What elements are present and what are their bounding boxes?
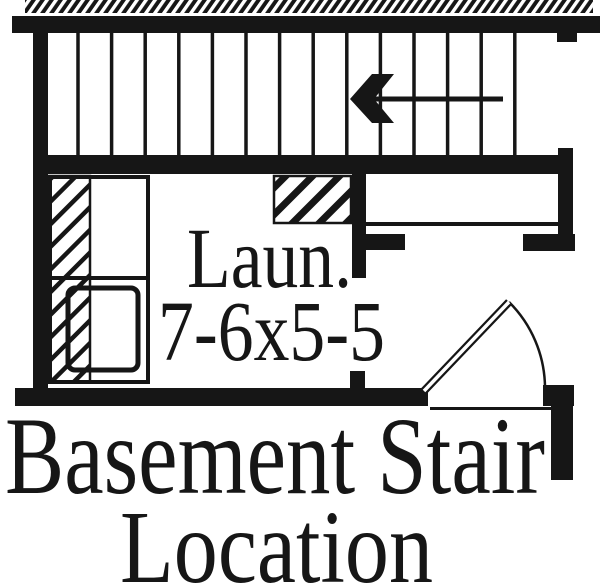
arrow-shaft	[373, 97, 503, 102]
top-wall-hatch-strip	[25, 0, 593, 13]
caption-title-line2: Location	[120, 490, 433, 585]
door-swing	[424, 302, 558, 410]
stair-treads	[78, 33, 515, 157]
stair-bottom-wall	[40, 155, 560, 174]
door-arc	[509, 302, 545, 387]
upper-wall-band	[12, 16, 600, 33]
basement-stair-floor-plan: Laun. 7-6x5-5 Basement Stair Location	[0, 0, 600, 585]
floor-plan-page: Laun. 7-6x5-5 Basement Stair Location	[0, 0, 600, 585]
laundry-dimensions-label: 7-6x5-5	[158, 283, 385, 379]
left-wall-stub	[360, 234, 405, 250]
right-wall-stub	[523, 234, 575, 251]
hall-wall-line	[366, 222, 558, 226]
door-leaf-core	[424, 302, 509, 391]
right-wall-lower	[551, 400, 573, 480]
left-wall	[33, 16, 48, 406]
upper-wall-tab	[557, 33, 577, 42]
laundry-partition-wall	[352, 160, 366, 278]
